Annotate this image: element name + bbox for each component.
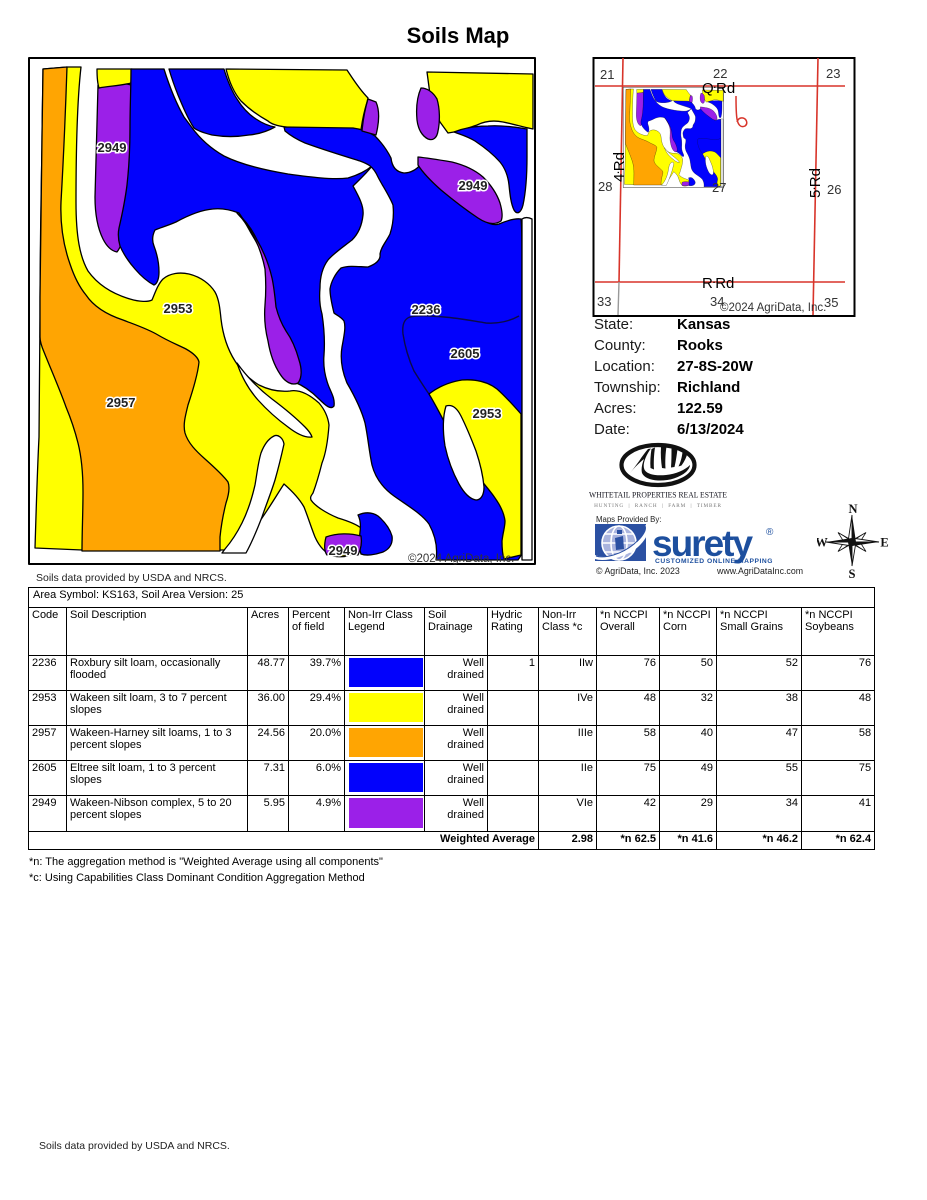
svg-text:S: S <box>849 567 856 581</box>
svg-text:2949: 2949 <box>459 178 488 193</box>
svg-text:E: E <box>880 536 888 550</box>
svg-text:2949: 2949 <box>329 543 358 558</box>
svg-text:®: ® <box>766 527 774 538</box>
svg-text:2953: 2953 <box>473 406 502 421</box>
svg-text:©2024 AgriData, Inc.: ©2024 AgriData, Inc. <box>408 553 514 565</box>
svg-text:2949: 2949 <box>98 140 127 155</box>
svg-text:CUSTOMIZED ONLINE MAPPING: CUSTOMIZED ONLINE MAPPING <box>655 558 773 565</box>
svg-text:WHITETAIL PROPERTIES REAL ESTA: WHITETAIL PROPERTIES REAL ESTATE <box>589 490 727 500</box>
svg-text:HUNTING | RANCH | FARM |: HUNTING | RANCH | FARM | TIMBER <box>594 503 722 509</box>
svg-text:21: 21 <box>600 67 614 82</box>
svg-text:4·Rd: 4·Rd <box>610 152 628 182</box>
svg-text:26: 26 <box>827 182 841 197</box>
svg-text:©2024 AgriData, Inc.: ©2024 AgriData, Inc. <box>720 302 826 314</box>
svg-text:33: 33 <box>597 294 611 309</box>
svg-text:N: N <box>848 502 857 516</box>
svg-text:R·Rd: R·Rd <box>702 274 734 292</box>
svg-text:2953: 2953 <box>164 301 193 316</box>
svg-text:2957: 2957 <box>107 395 136 410</box>
svg-text:Q·Rd: Q·Rd <box>702 79 735 97</box>
svg-text:W: W <box>817 536 828 550</box>
svg-text:2605: 2605 <box>451 346 480 361</box>
svg-text:2236: 2236 <box>412 302 441 317</box>
svg-text:27: 27 <box>712 180 726 195</box>
svg-text:5·Rd: 5·Rd <box>806 168 824 198</box>
svg-text:23: 23 <box>826 66 840 81</box>
